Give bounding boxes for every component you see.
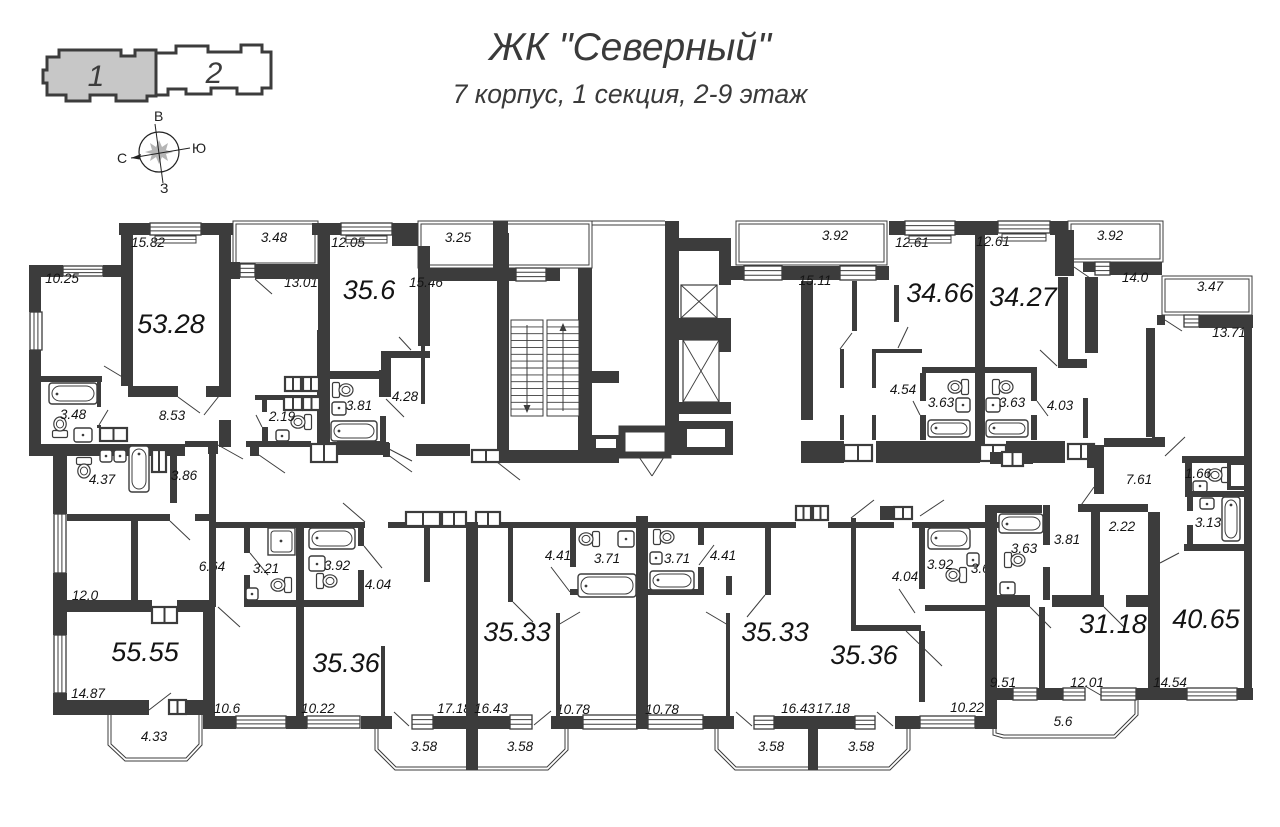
svg-text:3.58: 3.58 (411, 739, 438, 754)
svg-text:3.86: 3.86 (171, 468, 198, 483)
svg-text:40.65: 40.65 (1172, 604, 1241, 634)
svg-text:3.25: 3.25 (445, 230, 472, 245)
svg-text:2.19: 2.19 (268, 409, 296, 424)
svg-text:4.37: 4.37 (89, 472, 116, 487)
svg-text:3.63: 3.63 (928, 395, 955, 410)
svg-text:7 корпус, 1 секция, 2-9 этаж: 7 корпус, 1 секция, 2-9 этаж (453, 79, 809, 109)
svg-text:5.6: 5.6 (1054, 714, 1073, 729)
svg-text:2: 2 (205, 57, 223, 90)
svg-text:4.41: 4.41 (710, 548, 736, 563)
svg-text:3.81: 3.81 (1054, 532, 1080, 547)
svg-text:В: В (154, 108, 163, 124)
svg-text:34.27: 34.27 (989, 282, 1058, 312)
svg-text:4.04: 4.04 (892, 569, 918, 584)
svg-text:З: З (160, 180, 168, 196)
svg-text:35.33: 35.33 (483, 617, 551, 647)
svg-text:ЖК "Северный": ЖК "Северный" (487, 26, 773, 69)
svg-text:55.55: 55.55 (111, 637, 180, 667)
svg-text:31.18: 31.18 (1079, 609, 1147, 639)
svg-text:3.92: 3.92 (324, 558, 351, 573)
svg-text:4.04: 4.04 (365, 577, 391, 592)
svg-text:14.0: 14.0 (1122, 270, 1149, 285)
svg-text:35.36: 35.36 (830, 640, 899, 670)
svg-text:35.36: 35.36 (312, 648, 381, 678)
svg-text:10.78: 10.78 (645, 702, 679, 717)
svg-text:3.63: 3.63 (1011, 541, 1038, 556)
svg-text:4.03: 4.03 (1047, 398, 1074, 413)
svg-text:17.18: 17.18 (816, 701, 850, 716)
svg-text:С: С (117, 150, 127, 166)
svg-text:4.41: 4.41 (545, 548, 571, 563)
svg-text:9.51: 9.51 (990, 675, 1016, 690)
svg-text:35.33: 35.33 (741, 617, 809, 647)
svg-text:3.92: 3.92 (927, 557, 954, 572)
svg-text:4.28: 4.28 (392, 389, 419, 404)
svg-text:3.58: 3.58 (758, 739, 785, 754)
svg-text:13.71: 13.71 (1212, 325, 1246, 340)
svg-text:4.54: 4.54 (890, 382, 916, 397)
svg-text:3.13: 3.13 (1195, 515, 1222, 530)
svg-text:3.58: 3.58 (507, 739, 534, 754)
svg-text:16.43: 16.43 (474, 701, 508, 716)
svg-text:3.81: 3.81 (346, 398, 372, 413)
svg-text:16.43: 16.43 (781, 701, 815, 716)
svg-text:1: 1 (88, 60, 105, 93)
svg-text:1.66: 1.66 (1185, 466, 1212, 481)
svg-text:3.63: 3.63 (999, 395, 1026, 410)
svg-text:3.21: 3.21 (253, 561, 279, 576)
svg-text:10.78: 10.78 (556, 702, 590, 717)
svg-text:3.71: 3.71 (594, 551, 620, 566)
svg-text:10.6: 10.6 (214, 701, 241, 716)
svg-text:3.47: 3.47 (1197, 279, 1224, 294)
svg-text:8.53: 8.53 (159, 408, 186, 423)
svg-text:3.92: 3.92 (1097, 228, 1124, 243)
svg-text:15.11: 15.11 (799, 273, 832, 288)
svg-text:35.6: 35.6 (343, 275, 397, 305)
svg-text:14.54: 14.54 (1153, 675, 1187, 690)
svg-text:14.87: 14.87 (71, 686, 105, 701)
svg-text:7.61: 7.61 (1126, 472, 1152, 487)
svg-text:3.58: 3.58 (848, 739, 875, 754)
svg-text:3.71: 3.71 (664, 551, 690, 566)
svg-text:4.33: 4.33 (141, 729, 168, 744)
svg-text:Ю: Ю (192, 140, 206, 156)
svg-text:2.22: 2.22 (1108, 519, 1136, 534)
svg-text:34.66: 34.66 (906, 278, 975, 308)
svg-text:53.28: 53.28 (137, 309, 205, 339)
svg-text:3.92: 3.92 (822, 228, 849, 243)
svg-text:3.48: 3.48 (261, 230, 288, 245)
svg-text:10.22: 10.22 (950, 700, 984, 715)
svg-text:10.22: 10.22 (301, 701, 335, 716)
svg-text:3.48: 3.48 (60, 407, 87, 422)
svg-text:10.25: 10.25 (45, 271, 79, 286)
